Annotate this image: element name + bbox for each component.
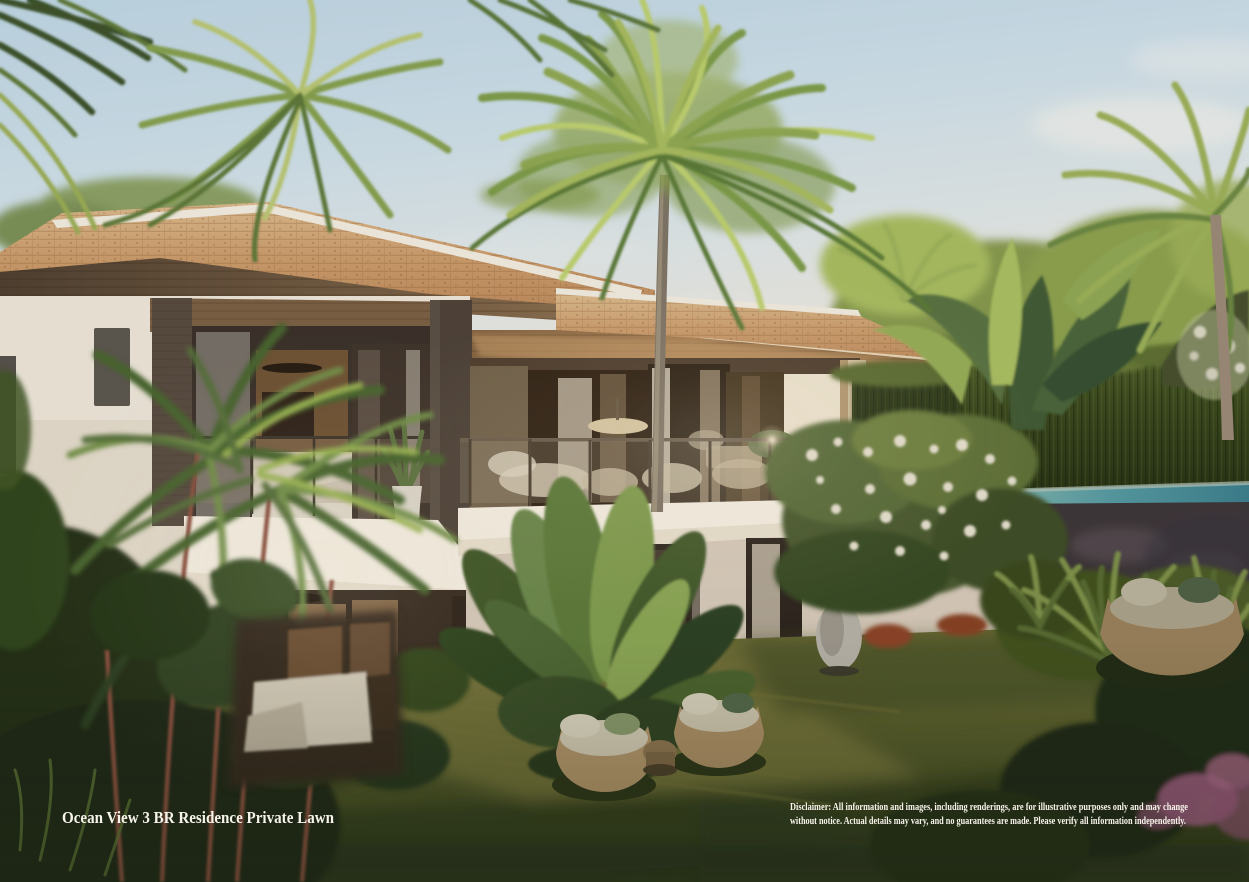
svg-text:Ocean View 3 BR Residence Priv: Ocean View 3 BR Residence Private Lawn [62, 808, 334, 827]
svg-text:Disclaimer: All information an: Disclaimer: All information and images, … [790, 802, 1188, 813]
svg-text:without notice. Actual details: without notice. Actual details may vary,… [790, 816, 1186, 827]
